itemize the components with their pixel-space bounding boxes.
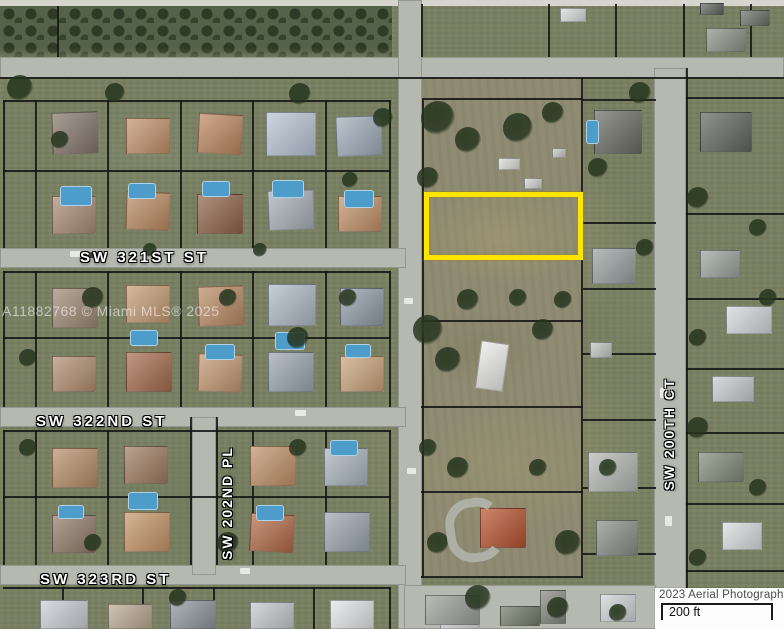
tree-canopy xyxy=(555,530,581,556)
scale-bar: 200 ft xyxy=(661,603,773,620)
building-roof xyxy=(590,342,612,358)
swimming-pool xyxy=(128,183,156,199)
building-roof xyxy=(40,600,88,629)
building-roof xyxy=(596,520,638,556)
tree-canopy xyxy=(749,219,767,237)
attribution-box: 2023 Aerial Photography 200 ft xyxy=(655,588,784,629)
vehicle xyxy=(404,298,413,304)
tree-canopy xyxy=(542,102,564,124)
building-roof xyxy=(552,148,566,158)
building-roof xyxy=(722,522,762,550)
tree-canopy xyxy=(689,329,707,347)
building-roof xyxy=(500,606,540,626)
tree-canopy xyxy=(287,327,309,349)
tree-canopy xyxy=(419,439,437,457)
building-roof xyxy=(560,8,586,22)
parcel-boundary-line xyxy=(683,4,685,57)
parcel-boundary-line xyxy=(389,271,391,407)
parcel-boundary-line xyxy=(180,100,182,248)
parcel-boundary-line xyxy=(424,98,583,100)
building-roof xyxy=(268,352,314,392)
building-roof xyxy=(698,452,744,482)
tree-canopy xyxy=(19,349,37,367)
tree-canopy xyxy=(636,239,654,257)
building-roof xyxy=(712,376,754,402)
building-roof xyxy=(706,28,746,52)
building-roof xyxy=(250,602,294,629)
building-roof xyxy=(700,3,724,15)
parcel-boundary-line xyxy=(0,77,784,79)
tree-canopy xyxy=(219,289,237,307)
tree-canopy xyxy=(417,167,439,189)
tree-canopy xyxy=(253,243,267,257)
parcel-boundary-line xyxy=(107,271,109,407)
parcel-boundary-line xyxy=(686,213,784,215)
parcel-boundary-line xyxy=(252,100,254,248)
tree-canopy xyxy=(629,82,651,104)
street-label-sw-322nd-st: SW 322ND ST xyxy=(36,413,167,430)
image-top-edge xyxy=(0,0,784,6)
tree-canopy xyxy=(435,347,461,373)
building-roof xyxy=(124,446,168,484)
tree-canopy xyxy=(413,315,443,345)
building-roof xyxy=(498,158,520,170)
building-roof xyxy=(197,113,243,155)
building-roof xyxy=(340,356,384,392)
aerial-map-photo[interactable]: SW 321ST ST SW 322ND ST SW 323RD ST SW 2… xyxy=(0,0,784,629)
parcel-boundary-line xyxy=(583,222,656,224)
swimming-pool xyxy=(272,180,304,198)
tree-canopy xyxy=(509,289,527,307)
tree-canopy xyxy=(342,172,358,188)
building-roof xyxy=(324,512,370,552)
tree-canopy xyxy=(687,417,709,439)
building-roof xyxy=(126,118,170,154)
tree-canopy xyxy=(457,289,479,311)
parcel-boundary-line xyxy=(3,337,391,339)
tree-canopy xyxy=(547,597,569,619)
building-roof xyxy=(592,248,636,284)
building-roof xyxy=(700,112,752,152)
parcel-boundary-line xyxy=(686,97,784,99)
swimming-pool xyxy=(586,120,599,144)
tree-canopy xyxy=(599,459,617,477)
swimming-pool xyxy=(205,344,235,360)
parcel-boundary-line xyxy=(3,100,5,248)
aerial-photography-credit: 2023 Aerial Photography xyxy=(659,589,780,601)
tree-canopy xyxy=(51,131,69,149)
tree-canopy xyxy=(421,101,455,135)
parcel-boundary-line xyxy=(3,430,391,432)
tree-canopy xyxy=(465,585,491,611)
parcel-boundary-line xyxy=(57,6,59,57)
building-roof xyxy=(740,10,770,26)
vehicle xyxy=(240,568,250,574)
tree-canopy xyxy=(19,439,37,457)
parcel-boundary-line xyxy=(313,587,315,629)
building-roof xyxy=(330,600,374,629)
building-roof xyxy=(126,352,172,392)
vehicle xyxy=(407,468,416,474)
parcel-boundary-line xyxy=(190,417,192,565)
tree-canopy xyxy=(455,127,481,153)
swimming-pool xyxy=(344,190,374,208)
building-roof xyxy=(594,110,642,154)
highlighted-parcel-outline xyxy=(424,192,583,260)
building-roof xyxy=(700,250,740,278)
building-roof xyxy=(108,604,152,629)
parcel-boundary-line xyxy=(421,4,423,57)
tree-canopy xyxy=(529,459,547,477)
tree-canopy xyxy=(339,289,357,307)
parcel-boundary-line xyxy=(107,100,109,248)
parcel-boundary-line xyxy=(180,271,182,407)
tree-canopy xyxy=(289,83,311,105)
parcel-boundary-line xyxy=(3,100,391,102)
parcel-boundary-line xyxy=(421,491,583,493)
parcel-boundary-line xyxy=(325,100,327,248)
swimming-pool xyxy=(330,440,358,456)
parcel-boundary-line xyxy=(583,288,656,290)
road-segment xyxy=(654,68,686,629)
parcel-boundary-line xyxy=(3,170,391,172)
street-label-sw-200th-ct: SW 200TH CT xyxy=(661,377,677,490)
parcel-boundary-line xyxy=(35,271,37,407)
building-roof xyxy=(268,284,316,326)
parcel-boundary-line xyxy=(35,100,37,248)
swimming-pool xyxy=(60,186,92,206)
parcel-boundary-line xyxy=(3,496,391,498)
parcel-boundary-line xyxy=(421,406,583,408)
parcel-boundary-line xyxy=(686,570,784,572)
street-label-sw-323rd-st: SW 323RD ST xyxy=(40,571,171,588)
parcel-boundary-line xyxy=(686,503,784,505)
building-roof xyxy=(52,356,96,392)
parcel-boundary-line xyxy=(3,271,391,273)
tree-canopy xyxy=(554,291,572,309)
building-roof xyxy=(726,306,772,334)
building-roof xyxy=(124,512,170,552)
tree-canopy xyxy=(373,108,393,128)
building-roof xyxy=(266,112,316,156)
tree-canopy xyxy=(7,75,33,101)
parcel-boundary-line xyxy=(686,368,784,370)
tree-canopy xyxy=(687,187,709,209)
building-roof xyxy=(197,194,243,234)
parcel-boundary-line xyxy=(686,68,688,600)
parcel-boundary-line xyxy=(615,4,617,57)
road-segment xyxy=(398,0,422,629)
mls-watermark: A11882768 © Miami MLS® 2025 xyxy=(2,303,220,319)
tree-canopy xyxy=(759,289,777,307)
vehicle xyxy=(665,516,672,526)
parcel-boundary-line xyxy=(548,4,550,57)
parcel-boundary-line xyxy=(3,430,5,565)
swimming-pool xyxy=(128,492,158,510)
parcel-boundary-line xyxy=(252,271,254,407)
swimming-pool xyxy=(256,505,284,521)
tree-canopy xyxy=(689,549,707,567)
tree-canopy xyxy=(289,439,307,457)
tree-canopy xyxy=(532,319,554,341)
tree-canopy xyxy=(169,589,187,607)
parcel-boundary-line xyxy=(421,320,583,322)
tree-canopy xyxy=(105,83,125,103)
parcel-boundary-line xyxy=(421,576,583,578)
tree-canopy xyxy=(84,534,102,552)
vehicle xyxy=(295,410,306,416)
parcel-boundary-line xyxy=(581,78,583,578)
tree-canopy xyxy=(588,158,608,178)
swimming-pool xyxy=(58,505,84,519)
swimming-pool xyxy=(345,344,371,358)
street-label-sw-202nd-pl: SW 202ND PL xyxy=(219,446,235,560)
parcel-boundary-line xyxy=(389,587,391,629)
tree-canopy xyxy=(503,113,533,143)
parcel-boundary-line xyxy=(325,271,327,407)
building-roof xyxy=(52,448,98,488)
parcel-boundary-line xyxy=(3,271,5,407)
building-roof xyxy=(524,178,542,189)
tree-canopy xyxy=(749,479,767,497)
tree-canopy xyxy=(609,604,627,622)
swimming-pool xyxy=(202,181,230,197)
street-label-sw-321st-st: SW 321ST ST xyxy=(80,249,209,266)
parcel-boundary-line xyxy=(389,430,391,565)
parcel-boundary-line xyxy=(107,430,109,565)
parcel-boundary-line xyxy=(583,419,656,421)
swimming-pool xyxy=(130,330,158,346)
tree-canopy xyxy=(447,457,469,479)
